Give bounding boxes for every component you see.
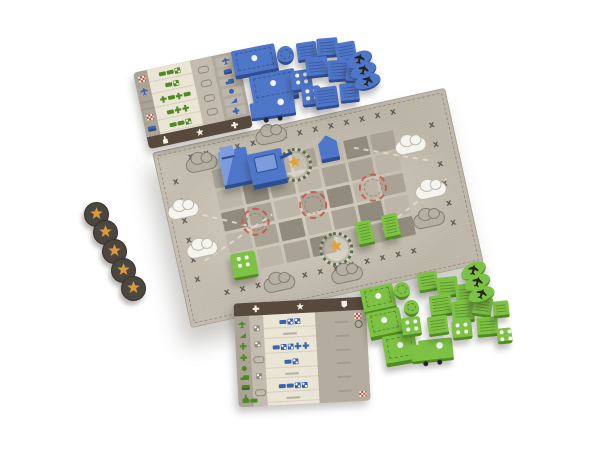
cross-icon [181,104,189,112]
green-die-piece [230,250,259,281]
card-center-column [263,312,320,406]
aid-text-row [316,331,367,340]
chain-icon [254,389,265,397]
dash-icon [336,362,350,365]
badge-icon [341,301,347,308]
green-die-piece [451,319,473,341]
checker-icon [146,114,154,121]
green-die-piece [496,327,513,344]
dash-icon [335,334,349,337]
dash-icon [334,320,348,323]
checker-icon [359,391,366,397]
star-token [121,276,146,301]
smoke-puff [254,125,288,147]
infantry-icon [242,366,247,371]
die-icon [287,343,293,349]
chain-icon [200,79,212,88]
aid-row [264,329,316,339]
green-cyl-piece [404,300,419,317]
cloud-embroidery [185,239,219,261]
dash-icon [335,348,349,351]
die-icon [254,341,260,347]
bar-icon [284,359,291,363]
player-aid-card-bottom [233,297,370,408]
dash-icon [285,372,299,375]
aid-row [267,393,319,403]
meeple-icon [161,135,170,144]
blue-cyl-piece [277,46,294,65]
chain-icon [206,108,218,117]
cloud-embroidery [166,200,200,222]
dash-icon [338,390,352,393]
plane-icon [238,320,246,328]
die-icon [280,344,286,350]
cloud-embroidery [414,180,448,202]
blue-tank-piece [247,148,289,190]
dash-icon [141,106,155,111]
plane-silhouette-icon [474,287,488,301]
green-chunk-piece [427,315,450,338]
cross-icon [239,343,246,350]
artillery-icon [239,333,246,338]
star-icon [195,128,204,137]
green-die-piece [401,316,423,338]
die-icon [174,67,181,74]
star-icon [286,154,303,171]
aid-text-row [318,373,369,382]
star-icon [296,302,304,310]
bar-icon [279,320,286,324]
star-icon [90,207,103,220]
grid-cell [326,185,354,209]
smoke-puff [330,264,364,286]
chain-icon [253,356,264,364]
die-icon [256,373,262,379]
card-corner-icons-bottom-left [242,398,257,403]
cross-icon [232,107,240,115]
grid-cell [283,239,311,263]
green-truck-piece [418,337,454,363]
aid-row [267,379,320,393]
die-icon [294,382,300,388]
cloud-embroidery [394,135,428,157]
die-icon [301,382,307,388]
grid-cell [321,163,349,187]
bar-icon [177,120,185,125]
cross-icon [294,342,301,349]
tank-icon [148,125,157,132]
star-icon [108,244,121,257]
tank-icon [224,69,233,76]
chain-icon [203,93,215,102]
star-icon [127,281,140,294]
aid-row [264,340,317,355]
aid-text-row [317,345,368,354]
aid-row [266,369,318,379]
grid-cell [278,218,306,242]
cross-icon [240,354,247,361]
truck-icon [240,375,249,380]
bar-icon [272,345,279,349]
blue-truck-piece [258,94,297,121]
bar-icon [158,71,166,76]
cross-icon [230,121,238,129]
aid-text-row [318,359,369,368]
blue-chunk-piece [314,86,340,111]
star-icon [99,225,112,238]
plane-icon [221,56,230,65]
dash-icon [337,376,351,379]
bar-icon [165,82,173,87]
die-icon [287,319,293,325]
die-icon [173,80,180,87]
wreath-icon [354,320,362,328]
chain-icon [197,65,209,74]
dash-icon [139,99,153,104]
unit-cell [221,85,243,96]
smoke-puff [262,273,296,295]
die-icon [185,117,192,124]
card-corner-icons-top-right [354,313,363,328]
aid-row [265,355,318,369]
stitch-border-left: x x x x x x [171,171,207,290]
star-icon [327,238,344,255]
bar-icon [242,399,249,403]
truck-icon [225,78,235,85]
bar-icon [278,384,285,388]
star-icon [117,263,130,276]
game-product-photo: x x x x x x x x x x x x x xx x x x x x x… [0,0,610,450]
plane-silhouette-icon [360,74,374,88]
checker-icon [138,76,146,83]
bar-icon [166,109,174,114]
artillery-icon [230,97,238,103]
die-icon [294,318,300,324]
bar-icon [250,398,257,402]
tank-icon [241,385,249,390]
bar-icon [169,121,177,126]
die-icon [292,358,298,364]
bar-icon [183,92,191,97]
grid-cell [257,245,285,269]
checker-icon [354,313,361,319]
infantry-icon [229,88,235,94]
bar-icon [166,69,174,74]
smoke-puff [412,209,446,231]
grid-cell [274,196,302,220]
cross-icon [252,305,259,312]
green-chunk-piece [492,300,510,319]
bar-icon [286,383,293,387]
card-corner-icons-bottom-right [359,391,366,397]
die-icon [254,325,260,331]
green-chunk-piece [476,316,499,338]
green-cyl-piece [394,282,410,300]
cross-icon [174,106,182,114]
dash-icon [283,332,297,335]
aid-row [263,315,316,329]
grid-cell [216,186,244,210]
bar-icon [167,95,175,100]
blue-chunk-piece [305,56,329,79]
cross-icon [175,92,183,100]
cross-icon [159,95,167,103]
dash-icon [286,396,300,399]
plane-icon [139,87,148,96]
cross-icon [302,342,309,349]
